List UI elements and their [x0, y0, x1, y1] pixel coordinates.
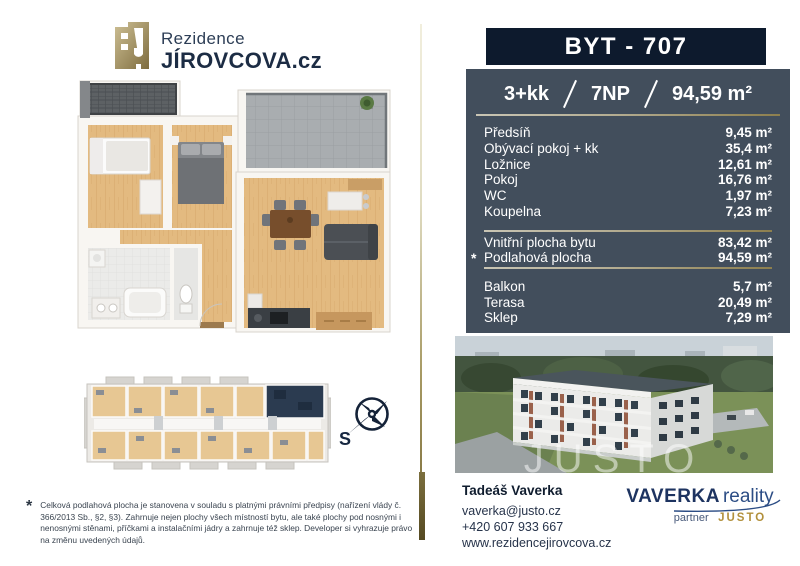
extra-label: Terasa: [484, 295, 525, 311]
extra-value: 5,7 m²: [733, 279, 772, 295]
brand-logo: VAVERKAreality partner JUSTO: [608, 486, 792, 526]
agent-website[interactable]: www.rezidencejirovcova.cz: [462, 535, 611, 551]
unit-title: BYT - 707: [565, 33, 688, 61]
extra-row: Sklep 7,29 m²: [484, 310, 772, 326]
extras-list: Balkon 5,7 m² Terasa 20,49 m² Sklep 7,29…: [484, 279, 772, 326]
legal-footnote: * Celková podlahová plocha je stanovena …: [26, 500, 418, 546]
slash-divider: [563, 80, 577, 108]
slash-divider: [644, 80, 658, 108]
contact-block: Tadeáš Vaverka vaverka@justo.cz +420 607…: [462, 483, 611, 552]
room-label: Pokoj: [484, 172, 518, 188]
area-row: * Podlahová plocha 94,59 m²: [484, 250, 772, 265]
footnote-asterisk: *: [471, 251, 476, 266]
room-label: Ložnice: [484, 157, 531, 173]
room-value: 1,97 m²: [725, 188, 772, 204]
area-summary: Vnitřní plocha bytu 83,42 m² * Podlahová…: [484, 235, 772, 265]
area-label: Podlahová plocha: [484, 250, 591, 265]
compass: S: [336, 390, 398, 454]
room-label: Koupelna: [484, 204, 541, 220]
room-label: Předsíň: [484, 125, 531, 141]
room-label: Obývací pokoj + kk: [484, 141, 598, 157]
building-render-photo: JUSTO: [455, 336, 773, 473]
floor-plan-3d: [60, 80, 400, 342]
room-list: Předsíň 9,45 m² Obývací pokoj + kk 35,4 …: [484, 125, 772, 220]
brand-swoosh-icon: [666, 498, 786, 516]
room-label: WC: [484, 188, 507, 204]
extra-row: Balkon 5,7 m²: [484, 279, 772, 295]
room-value: 12,61 m²: [718, 157, 772, 173]
area-label: Vnitřní plocha bytu: [484, 235, 596, 250]
room-row: Obývací pokoj + kk 35,4 m²: [484, 141, 772, 157]
room-row: Pokoj 16,76 m²: [484, 172, 772, 188]
footnote-text: Celková podlahová plocha je stanovena v …: [40, 500, 418, 546]
logo-line2: JÍROVCOVA.cz: [161, 48, 322, 74]
logo-line1: Rezidence: [161, 29, 322, 49]
extra-label: Balkon: [484, 279, 525, 295]
unit-title-banner: BYT - 707: [486, 28, 766, 65]
room-row: WC 1,97 m²: [484, 188, 772, 204]
unit-specs: 3+kk 7NP 94,59 m²: [484, 69, 772, 114]
footnote-symbol: *: [26, 500, 32, 546]
extra-label: Sklep: [484, 310, 518, 326]
gold-divider: [476, 114, 780, 116]
gold-divider: [484, 267, 772, 269]
highlighted-unit-707: [266, 385, 324, 418]
photo-watermark: JUSTO: [524, 437, 704, 473]
logo-building-icon: [112, 20, 152, 75]
extra-row: Terasa 20,49 m²: [484, 295, 772, 311]
area-row: Vnitřní plocha bytu 83,42 m²: [484, 235, 772, 250]
area-value: 83,42 m²: [718, 235, 772, 250]
vertical-divider: [420, 24, 422, 472]
agent-name: Tadeáš Vaverka: [462, 483, 611, 498]
room-row: Ložnice 12,61 m²: [484, 157, 772, 173]
room-value: 35,4 m²: [725, 141, 772, 157]
agent-phone[interactable]: +420 607 933 667: [462, 519, 611, 535]
vertical-divider-accent: [419, 472, 425, 540]
extra-value: 20,49 m²: [718, 295, 772, 311]
unit-layout: 3+kk: [504, 83, 549, 106]
room-row: Koupelna 7,23 m²: [484, 204, 772, 220]
room-value: 9,45 m²: [725, 125, 772, 141]
gold-divider: [484, 230, 772, 232]
listing-sheet: Rezidence JÍROVCOVA.cz: [0, 0, 800, 566]
unit-info-panel: 3+kk 7NP 94,59 m² Předsíň 9,45 m² Obývac…: [466, 69, 790, 333]
unit-total-area: 94,59 m²: [672, 83, 752, 106]
room-value: 16,76 m²: [718, 172, 772, 188]
site-logo: Rezidence JÍROVCOVA.cz: [112, 20, 322, 75]
agent-email[interactable]: vaverka@justo.cz: [462, 503, 611, 519]
room-row: Předsíň 9,45 m²: [484, 125, 772, 141]
extra-value: 7,29 m²: [725, 310, 772, 326]
area-value: 94,59 m²: [718, 250, 772, 265]
room-value: 7,23 m²: [725, 204, 772, 220]
floor-overview-plan: [84, 372, 331, 474]
compass-north-label: S: [339, 429, 351, 450]
unit-floor: 7NP: [591, 83, 630, 106]
